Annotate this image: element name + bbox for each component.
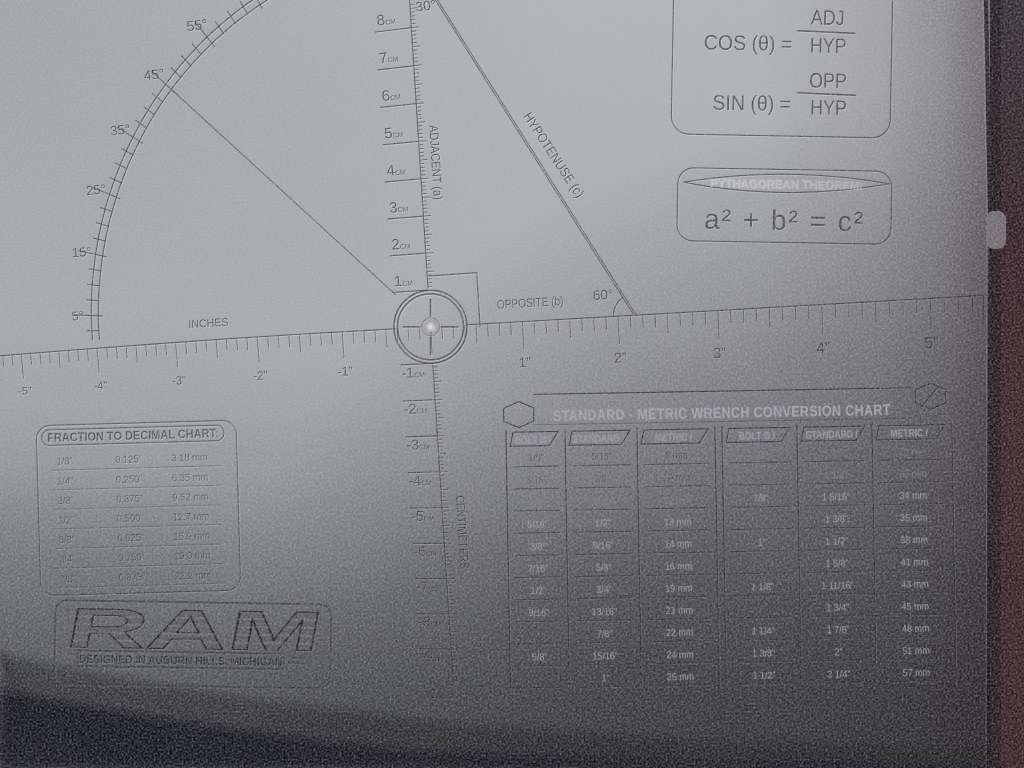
svg-text:10 mm: 10 mm	[663, 472, 691, 484]
svg-text:7/8”: 7/8”	[753, 493, 769, 505]
svg-text:5/16”: 5/16”	[591, 451, 612, 463]
svg-text:57 mm: 57 mm	[903, 667, 931, 679]
svg-text:34 mm: 34 mm	[899, 490, 927, 502]
svg-text:9/16”: 9/16”	[528, 607, 549, 619]
svg-text:7/16”: 7/16”	[528, 563, 549, 575]
svg-text:METRIC /: METRIC /	[890, 427, 928, 440]
svg-text:1”: 1”	[757, 537, 765, 549]
svg-text:1 5/8”: 1 5/8”	[825, 558, 848, 570]
svg-text:1 1/8”: 1 1/8”	[823, 447, 846, 459]
svg-text:13/16”: 13/16”	[591, 606, 617, 618]
svg-text:7/8”: 7/8”	[597, 629, 613, 641]
svg-text:3/4”: 3/4”	[752, 449, 768, 461]
svg-text:21 mm: 21 mm	[665, 605, 693, 617]
svg-text:STANDARD /: STANDARD /	[572, 433, 624, 446]
svg-text:1 3/4”: 1 3/4”	[826, 602, 849, 614]
svg-text:1 1/4”: 1 1/4”	[824, 469, 847, 481]
svg-text:1 1/8”: 1 1/8”	[751, 581, 774, 593]
svg-text:1 7/8”: 1 7/8”	[827, 624, 850, 636]
svg-text:BOLT Ø /: BOLT Ø /	[738, 430, 775, 443]
svg-text:1 3/8”: 1 3/8”	[825, 514, 848, 526]
svg-text:1/2”: 1/2”	[595, 518, 611, 530]
svg-text:1 3/8”: 1 3/8”	[752, 648, 775, 660]
svg-text:2 1/4”: 2 1/4”	[827, 669, 850, 681]
svg-text:5/8”: 5/8”	[596, 562, 612, 574]
svg-text:35 mm: 35 mm	[900, 512, 928, 524]
svg-text:25 mm: 25 mm	[667, 671, 695, 683]
svg-text:43 mm: 43 mm	[901, 579, 929, 591]
svg-text:1 1/4”: 1 1/4”	[752, 626, 775, 638]
svg-text:5/16”: 5/16”	[527, 519, 548, 531]
svg-text:BOLT Ø /: BOLT Ø /	[514, 434, 551, 447]
svg-text:1”: 1”	[601, 673, 609, 685]
svg-text:19 mm: 19 mm	[665, 583, 693, 595]
svg-text:1 11/16”: 1 11/16”	[821, 580, 854, 592]
svg-text:41 mm: 41 mm	[901, 557, 929, 569]
svg-text:1 1/2”: 1 1/2”	[825, 536, 848, 548]
svg-text:22 mm: 22 mm	[666, 627, 694, 639]
svg-text:METRIC /: METRIC /	[654, 431, 692, 444]
svg-text:15/16”: 15/16”	[592, 651, 618, 663]
svg-text:9/16”: 9/16”	[593, 540, 614, 552]
svg-text:1/4”: 1/4”	[529, 497, 545, 509]
svg-text:3/8”: 3/8”	[530, 541, 546, 553]
svg-text:48 mm: 48 mm	[902, 623, 930, 635]
svg-text:3/16”: 3/16”	[526, 475, 547, 487]
svg-text:1/8”: 1/8”	[528, 452, 544, 464]
svg-text:5/8”: 5/8”	[532, 652, 548, 664]
svg-text:13 mm: 13 mm	[664, 516, 692, 528]
svg-text:38 mm: 38 mm	[900, 534, 928, 546]
svg-text:3/8”: 3/8”	[594, 474, 610, 486]
svg-text:11 mm: 11 mm	[664, 494, 691, 506]
svg-text:51 mm: 51 mm	[902, 645, 930, 657]
svg-text:29 mm: 29 mm	[899, 446, 927, 458]
svg-text:45 mm: 45 mm	[901, 601, 929, 613]
svg-text:7/16”: 7/16”	[592, 496, 613, 508]
svg-text:32 mm: 32 mm	[899, 468, 927, 480]
svg-text:3/4”: 3/4”	[596, 584, 612, 596]
svg-text:1 1/2”: 1 1/2”	[752, 670, 775, 682]
svg-text:24 mm: 24 mm	[666, 649, 694, 661]
svg-text:8 mm: 8 mm	[665, 450, 688, 462]
svg-text:1 5/16”: 1 5/16”	[822, 491, 850, 503]
svg-text:16 mm: 16 mm	[665, 561, 693, 573]
svg-text:2”: 2”	[834, 647, 842, 659]
svg-text:STANDARD /: STANDARD /	[806, 429, 858, 442]
svg-text:1/2”: 1/2”	[531, 585, 547, 597]
svg-text:14 mm: 14 mm	[664, 539, 692, 551]
